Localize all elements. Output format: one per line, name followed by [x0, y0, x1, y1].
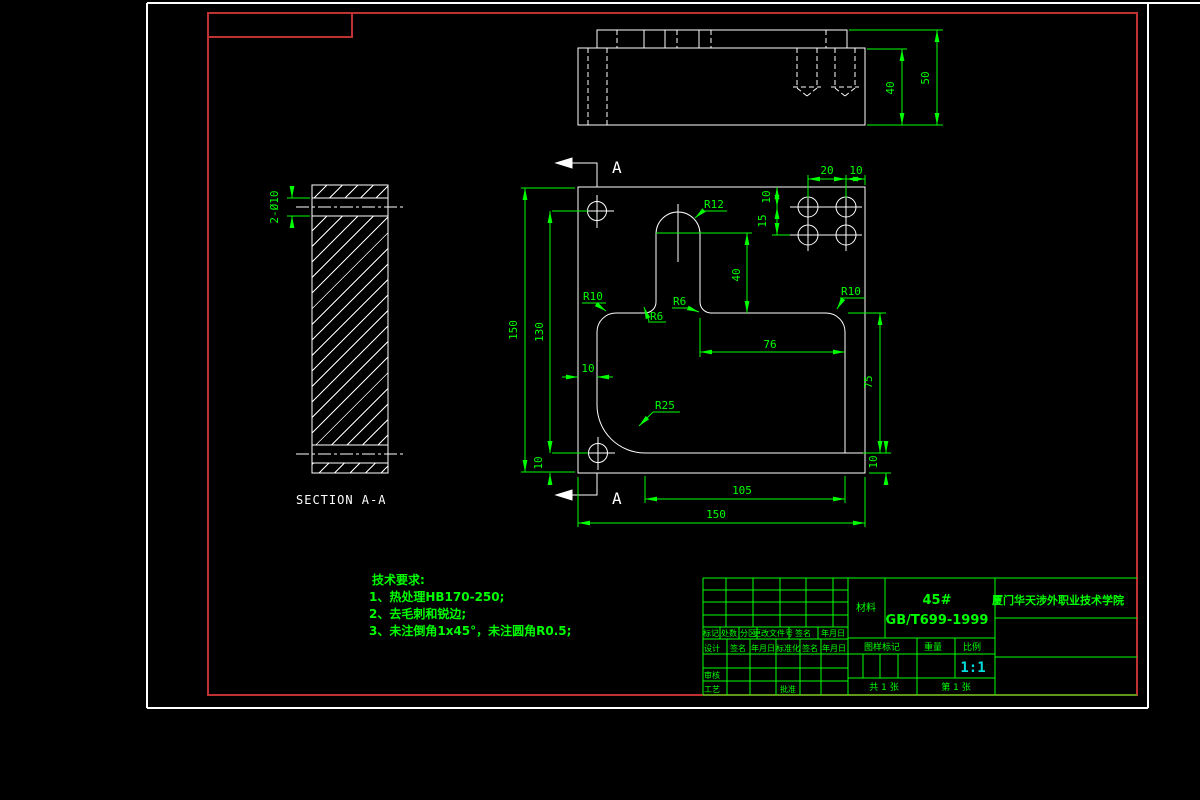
tech-req-item: 1、热处理HB170-250;: [369, 589, 571, 606]
dim-hole-bottom-offset: 10: [532, 456, 545, 469]
frame-zone-box: [208, 13, 352, 37]
tb-weight-label: 重量: [924, 641, 942, 653]
tech-req-title: 技术要求:: [372, 572, 571, 589]
section-view-geometry: [296, 185, 404, 473]
dim-slot-depth: 40: [730, 268, 743, 281]
tb-scale-label: 比例: [963, 641, 981, 653]
drawing-frame: [208, 13, 1137, 695]
dim-step-width: 105: [732, 484, 752, 497]
dim-overall-height: 150: [507, 320, 520, 340]
dim-pattern-spacing-h: 20: [820, 164, 833, 177]
tb-review: 审核: [704, 670, 720, 680]
section-view-label: SECTION A-A: [296, 493, 386, 507]
dim-left-wall: 10: [581, 362, 594, 375]
dim-step-height: 10: [867, 455, 880, 468]
dim-pattern-edge-h: 10: [849, 164, 862, 177]
tb-mark: 标记: [703, 628, 719, 638]
radius-pocket-top-right: R10: [841, 285, 861, 298]
tb-date1: 年月日: [821, 628, 845, 638]
top-view-geometry: [578, 30, 865, 125]
tb-mark-label: 图样标记: [864, 641, 900, 653]
material-label: 材料: [856, 601, 876, 614]
tb-sheets-total: 共 1 张: [869, 682, 898, 693]
dim-inner-height: 130: [533, 322, 546, 342]
tb-change-doc: 更改文件号: [753, 628, 793, 638]
blind-hole-right: [831, 48, 859, 96]
tb-sign2: 签名: [730, 643, 746, 653]
technical-requirements: 技术要求: 1、热处理HB170-250; 2、去毛刺和锐边; 3、未注倒角1x…: [369, 572, 571, 640]
tech-req-item: 2、去毛刺和锐边;: [369, 606, 571, 623]
dim-pocket-depth: 75: [862, 375, 875, 388]
school-name: 厦门华天涉外职业技术学院: [992, 593, 1124, 607]
radius-slot-bottom-left: R6: [650, 310, 663, 323]
blind-hole-left: [793, 48, 821, 96]
material-standard: GB/T699-1999: [886, 613, 989, 628]
dim-top-view-50: 50: [919, 71, 932, 84]
dim-floor-width: 76: [763, 338, 776, 351]
dim-overall-width: 150: [706, 508, 726, 521]
section-letter-top: A: [612, 158, 622, 177]
radius-corner: R25: [655, 399, 675, 412]
radius-slot-top: R12: [704, 198, 724, 211]
dim-pattern-spacing-v: 15: [756, 214, 769, 227]
dim-pattern-top-offset: 10: [760, 190, 773, 203]
dim-section-holes: 2-Ø10: [268, 190, 281, 223]
section-cut-marks: [556, 158, 597, 500]
centerlines: [581, 192, 862, 470]
tb-date3: 年月日: [822, 643, 846, 653]
tb-approve: 批准: [780, 684, 796, 694]
tb-date2: 年月日: [751, 643, 775, 653]
tech-req-item: 3、未注倒角1x45°，未注圆角R0.5;: [369, 623, 571, 640]
tb-sign3: 签名: [802, 643, 818, 653]
tb-sign1: 签名: [795, 628, 811, 638]
drawing-svg: 40 50 2-Ø10 SECTION A-A: [0, 0, 1200, 800]
tb-standardize: 标准化: [776, 643, 800, 653]
tb-count: 处数: [721, 628, 737, 638]
main-view-dimensions: [521, 175, 891, 527]
material-grade: 45#: [923, 593, 952, 608]
tb-process: 工艺: [704, 685, 720, 694]
dim-top-view-40: 40: [884, 81, 897, 94]
section-letter-bottom: A: [612, 489, 622, 508]
tb-scale-value: 1:1: [960, 660, 985, 676]
radius-slot-bottom-right: R6: [673, 295, 686, 308]
tb-design: 设计: [704, 643, 720, 653]
tb-sheet-number: 第 1 张: [941, 681, 970, 693]
cad-drawing-canvas: 40 50 2-Ø10 SECTION A-A: [0, 0, 1200, 800]
radius-pocket-top-left: R10: [583, 290, 603, 303]
